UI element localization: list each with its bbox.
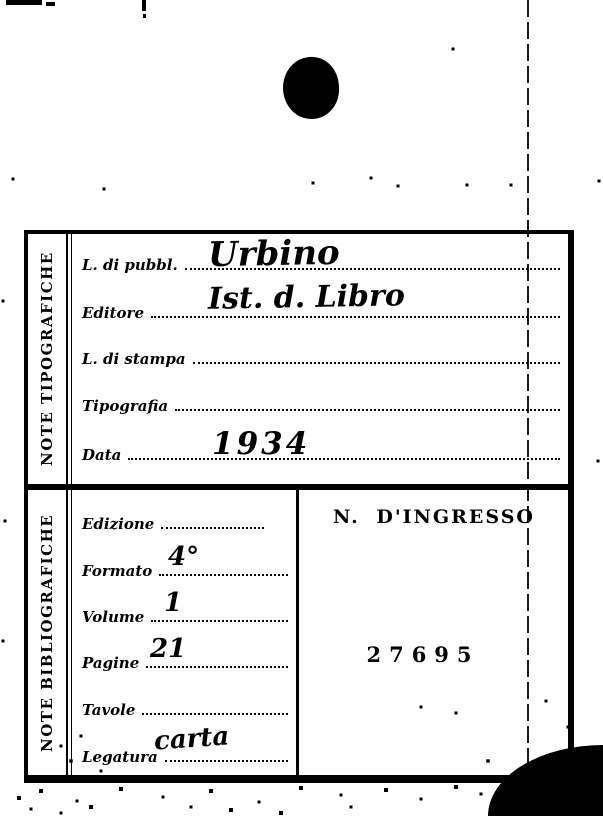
field-label: Pagine <box>82 654 146 672</box>
punch-hole <box>280 54 342 122</box>
scanned-catalog-card-page: NOTE TIPOGRAFICHE NOTE BIBLIOGRAFICHE L.… <box>0 0 603 816</box>
ingresso-box-divider-line <box>296 490 299 775</box>
field-label: Formato <box>82 562 159 580</box>
field-label: Tipografia <box>82 397 175 415</box>
dotted-leader <box>161 525 264 529</box>
field-row-tipografia: Tipografia <box>82 397 560 415</box>
dotted-leader <box>128 456 560 460</box>
accession-number-stamp: 27695 <box>328 642 518 667</box>
dotted-leader <box>142 711 288 715</box>
catalog-card: NOTE TIPOGRAFICHE NOTE BIBLIOGRAFICHE L.… <box>24 230 574 783</box>
scan-smudge <box>46 2 55 6</box>
handwritten-binding: carta <box>153 721 230 756</box>
field-label: Volume <box>82 608 151 626</box>
handwritten-format: 4° <box>168 542 199 572</box>
ingresso-box-title: N. D'INGRESSO <box>306 506 562 528</box>
field-label: Tavole <box>82 701 142 719</box>
field-row-data: Data <box>82 446 560 464</box>
field-label: Editore <box>82 304 151 322</box>
scan-smudge <box>6 0 42 5</box>
field-row-l-di-stampa: L. di stampa <box>82 350 560 368</box>
dotted-leader <box>165 758 288 762</box>
dotted-leader <box>159 572 288 576</box>
sidebar-divider-line <box>66 234 72 775</box>
scan-smudge <box>143 14 146 18</box>
field-label: L. di pubbl. <box>82 256 185 274</box>
dotted-leader <box>151 618 288 622</box>
page-edge-line <box>527 0 529 816</box>
handwritten-place-of-publication: Urbino <box>208 233 340 275</box>
handwritten-publisher: Ist. d. Libro <box>208 278 405 316</box>
field-label: L. di stampa <box>82 350 193 368</box>
handwritten-pages: 21 <box>150 634 186 664</box>
field-row-volume: Volume <box>82 608 288 626</box>
section-label-note-bibliografiche: NOTE BIBLIOGRAFICHE <box>28 492 66 774</box>
handwritten-volume: 1 <box>164 588 182 618</box>
field-label: Edizione <box>82 515 161 533</box>
handwritten-date: 1934 <box>212 426 310 462</box>
dotted-leader <box>146 664 288 668</box>
dotted-leader <box>175 407 560 411</box>
field-label: Data <box>82 446 128 464</box>
dotted-leader <box>193 360 560 364</box>
section-label-note-tipografiche: NOTE TIPOGRAFICHE <box>28 234 66 484</box>
field-label: Legatura <box>82 748 165 766</box>
field-row-tavole: Tavole <box>82 701 288 719</box>
scan-smudge <box>142 0 146 11</box>
field-row-edizione: Edizione <box>82 515 264 533</box>
scan-noise-speckles <box>0 0 2 2</box>
